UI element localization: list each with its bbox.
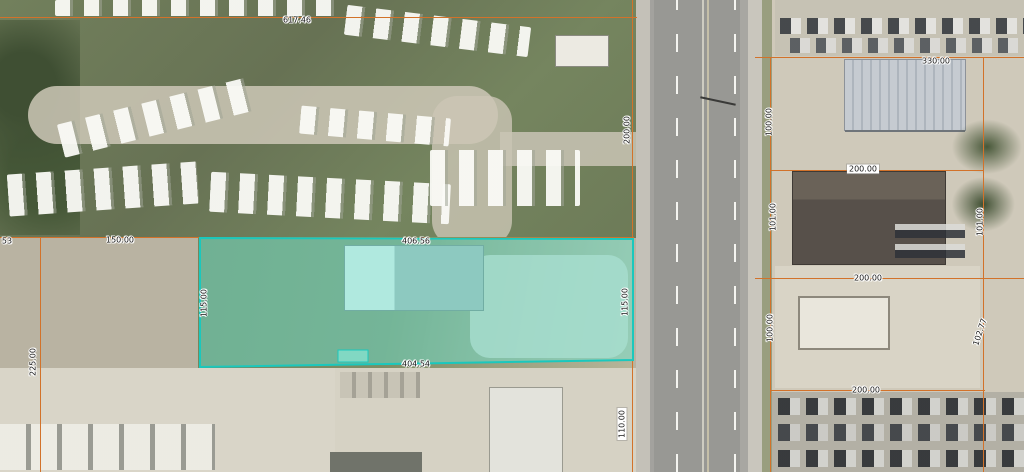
parked-cars-cluster	[895, 218, 965, 258]
dimension-label: 406.56	[402, 237, 430, 246]
trailer-row	[430, 150, 580, 206]
dimension-label: 100.00	[766, 314, 775, 342]
highway	[636, 0, 762, 472]
dark-shed	[330, 452, 422, 472]
dimension-label: 101.00	[976, 208, 985, 236]
dimension-label: 330.00	[922, 57, 950, 66]
dimension-label: 150.00	[106, 236, 134, 245]
center-line	[707, 0, 709, 472]
dimension-label: 110.00	[618, 408, 627, 440]
dimension-label: 404.54	[402, 360, 430, 369]
dimension-label: 100.00	[765, 108, 774, 136]
dimension-label: 200.00	[623, 116, 632, 144]
parked-cars-row	[780, 18, 1024, 34]
trailer-row	[55, 0, 345, 16]
dimension-label: 200.00	[854, 274, 882, 283]
parcel-boundary-line	[983, 57, 984, 472]
parked-cars-row	[790, 38, 1024, 53]
dimension-label: 617.46	[283, 16, 311, 25]
lane-dash-line	[676, 0, 678, 472]
building-near-road	[556, 36, 608, 66]
parked-cars-row	[778, 450, 1024, 467]
center-line	[702, 0, 704, 472]
dimension-label: 200.00	[852, 386, 880, 395]
parcel-boundary-line	[755, 278, 1024, 279]
warehouse-roof	[845, 60, 965, 130]
equipment-pad	[340, 372, 420, 398]
aerial-map-canvas[interactable]: 617.46330.00200.0053150.00406.56404.5411…	[0, 0, 1024, 472]
trees-right-mid	[950, 118, 1024, 233]
dimension-label: 225.00	[29, 348, 38, 376]
dimension-label: 200.00	[847, 165, 879, 174]
selected-parcel-highlight[interactable]	[200, 238, 633, 367]
dimension-label: 115.00	[200, 289, 209, 317]
parcel-boundary-line	[40, 237, 41, 472]
parked-trucks-row	[0, 424, 215, 470]
lane-dash-line	[734, 0, 736, 472]
parked-cars-row	[778, 424, 1024, 441]
parcel-boundary-line	[632, 0, 633, 472]
dimension-label: 115.00	[621, 288, 630, 316]
small-white-building	[490, 388, 562, 472]
dimension-label: 101.00	[769, 203, 778, 231]
parcel-boundary-line	[0, 17, 637, 18]
parked-cars-row	[778, 398, 1024, 415]
dimension-label: 53	[2, 237, 12, 246]
small-building-right	[800, 298, 888, 348]
